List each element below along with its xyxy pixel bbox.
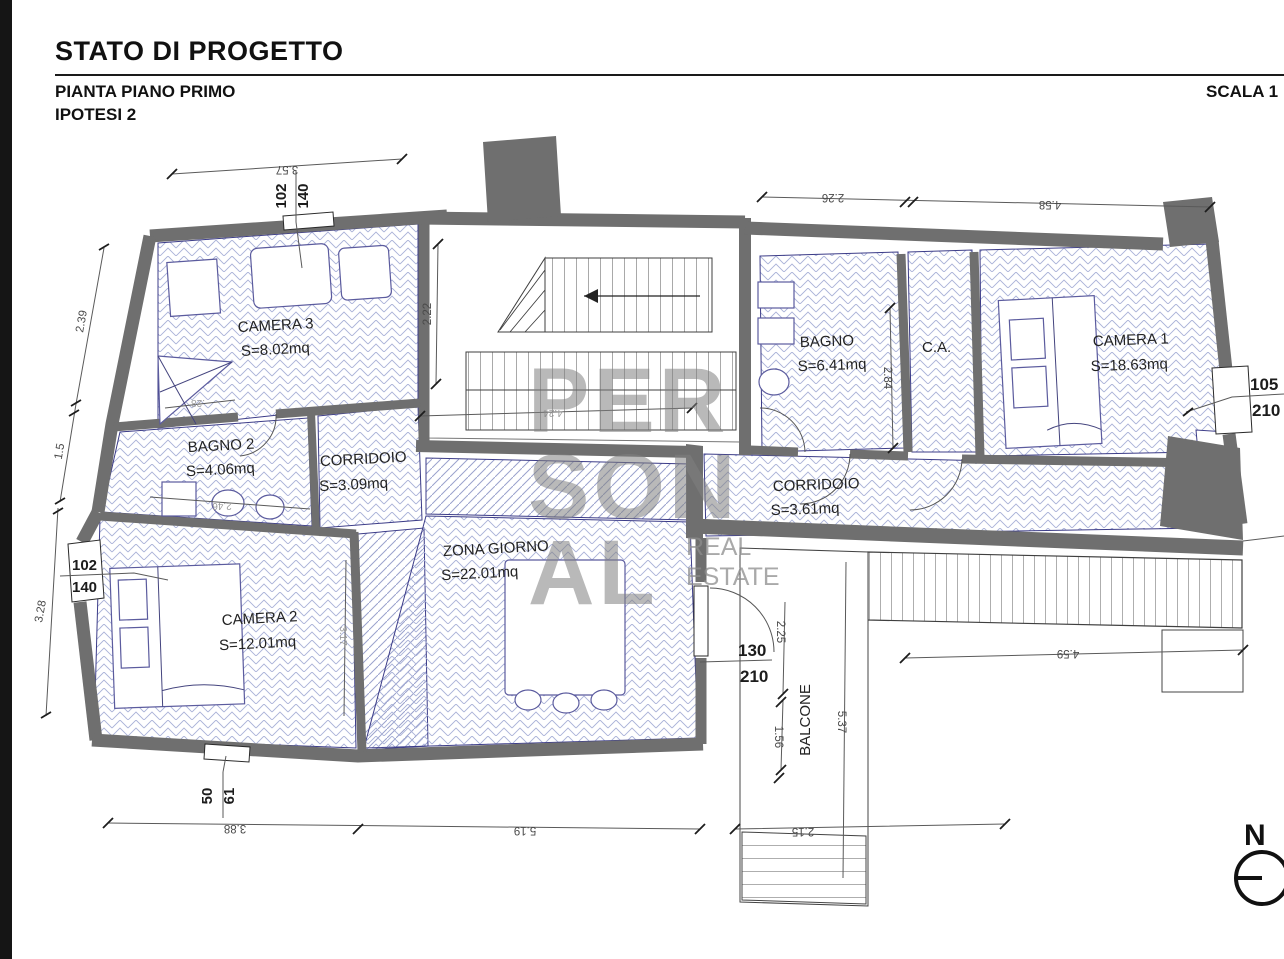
north-label: N <box>1244 819 1266 852</box>
dim-left-line <box>46 248 104 716</box>
bagno-name: BAGNO <box>800 332 855 351</box>
wall-corridor-top-a <box>750 450 798 452</box>
camera3-area: S=8.02mq <box>241 339 311 360</box>
pillow-camera2-b <box>120 627 149 668</box>
dim-balcony-a: 2.25 <box>774 621 786 643</box>
window-small-h: 61 <box>221 788 238 805</box>
wall-ca-camera1 <box>974 252 980 456</box>
window-left-h: 140 <box>72 579 97 596</box>
dim-bagno-depth: 2.84 <box>881 367 893 390</box>
wall-corner-chunk <box>1160 436 1243 540</box>
bed-camera3 <box>250 243 332 308</box>
dim-stair-height: 2.22 <box>422 303 434 325</box>
wall-left-lower <box>80 602 96 740</box>
door-balcony-h: 210 <box>740 667 768 686</box>
camera1-name: CAMERA 1 <box>1093 330 1169 350</box>
label-window-small: 50 61 <box>199 756 238 818</box>
bagno-area: S=6.41mq <box>797 356 866 375</box>
wall-topright-stub <box>1163 197 1219 247</box>
pillow-camera1-b <box>1012 366 1048 408</box>
window-right-h: 210 <box>1252 401 1280 420</box>
dim-top-right-b: 4.58 <box>1039 198 1061 210</box>
dim-balcony-b: 1.56 <box>772 726 784 748</box>
pillow-camera2-a <box>118 579 147 620</box>
wall-chimney-stub <box>483 136 561 222</box>
dim-top-right-a: 2.26 <box>822 191 844 203</box>
dim-balcony-len: 5.37 <box>835 711 847 733</box>
chair-a <box>515 690 541 710</box>
dim-bagno2-width: 2.46 <box>212 500 232 511</box>
chair-c <box>591 690 617 710</box>
dim-bottom-c: 2.15 <box>792 825 814 837</box>
balcony-right-box <box>1162 630 1243 692</box>
desk-camera3 <box>167 259 221 316</box>
dim-balcony-bottom: 4.59 <box>1057 647 1079 659</box>
balcony-steps <box>742 832 866 904</box>
corridoio2-area: S=3.61mq <box>770 500 839 519</box>
dim-camera2-depth: 3.17 <box>337 626 348 646</box>
wall-left-bump <box>82 512 98 542</box>
balcone-name: BALCONE <box>797 684 814 756</box>
chair-b <box>553 693 579 713</box>
bagno2-name: BAGNO 2 <box>187 436 254 456</box>
dim-bottom-a: 3.88 <box>224 822 246 834</box>
wardrobe-camera3 <box>338 245 392 300</box>
dim-top-left: 3.57 <box>276 163 298 175</box>
corridoio1-area: S=3.09mq <box>319 475 389 496</box>
camera1-area: S=18.63mq <box>1090 355 1168 375</box>
dim-bottom-b: 5.19 <box>514 824 536 836</box>
dim-right-edge-stub <box>1243 536 1284 541</box>
wall-corridor-top-c <box>962 459 1200 463</box>
window-right-w: 105 <box>1250 375 1278 394</box>
toilet-bagno <box>759 369 789 395</box>
wall-stair-top <box>418 218 745 222</box>
watermark-sub1: REAL <box>686 532 780 562</box>
pillow-camera1-a <box>1009 318 1045 360</box>
balcony-strip <box>868 552 1242 628</box>
floor-plan-page: STATO DI PROGETTO PIANTA PIANO PRIMO SCA… <box>0 0 1284 959</box>
bidet-bagno <box>758 318 794 344</box>
door-balcony-w: 130 <box>738 641 766 660</box>
window-small-w: 50 <box>199 788 216 805</box>
window-right <box>1212 366 1252 434</box>
window-small-leader <box>223 756 226 818</box>
wall-corridor-top-b <box>850 454 908 456</box>
north-symbol: N <box>1236 819 1284 904</box>
balcony <box>740 548 1243 906</box>
corridoio2-name: CORRIDOIO <box>773 475 860 495</box>
watermark-subtext: REAL ESTATE <box>686 532 780 592</box>
wall-right-top <box>745 228 1163 244</box>
dim-left-lower: 3.28 <box>33 599 49 623</box>
wall-bagno2-corr <box>311 412 316 530</box>
watermark-line1: PER <box>528 358 739 444</box>
dim-left-upper: 2.39 <box>74 309 90 333</box>
dim-camera3-offset: .28 <box>191 397 205 408</box>
watermark-sub2: ESTATE <box>686 562 780 592</box>
sink-bagno <box>758 282 794 308</box>
bagno2-area: S=4.06mq <box>186 460 256 481</box>
window-top-h: 140 <box>295 183 312 208</box>
dim-left-mid: 1.5 <box>53 443 68 461</box>
window-small-bottom <box>204 744 250 762</box>
watermark-line2: SON <box>528 444 739 530</box>
ca-name: C.A. <box>922 339 951 356</box>
window-top-w: 102 <box>273 183 290 208</box>
stair-upper-flight <box>545 258 712 332</box>
camera1-furniture <box>998 296 1102 449</box>
window-left-w: 102 <box>72 557 97 574</box>
